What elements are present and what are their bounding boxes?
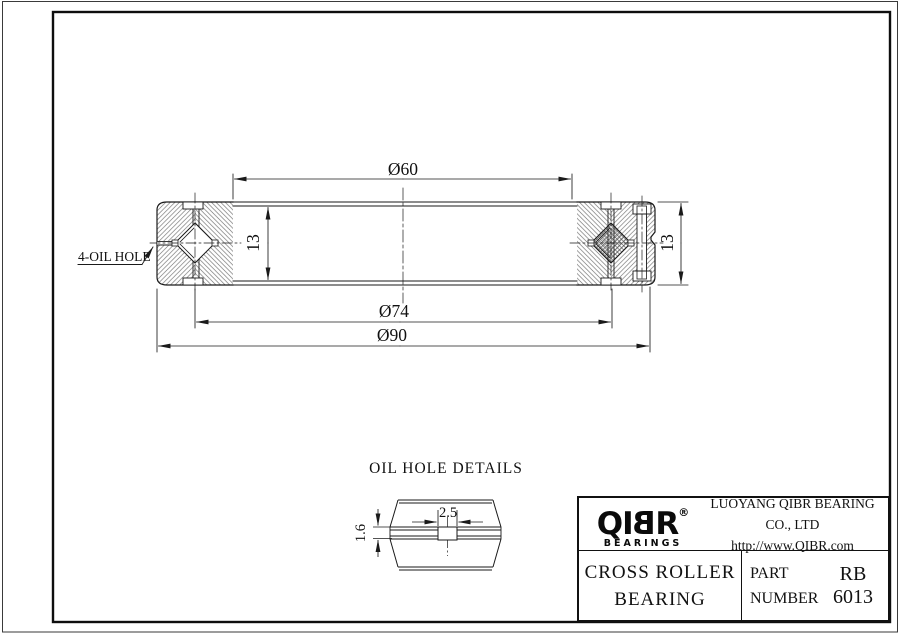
detail-title: OIL HOLE DETAILS xyxy=(369,460,523,477)
company-logo: QIBR® BEARINGS xyxy=(579,499,701,549)
dim-width-left-label: 13 xyxy=(243,234,263,252)
dim-od-label: Ø90 xyxy=(377,325,407,345)
detail-dim-width-label: 2.5 xyxy=(439,505,457,521)
drawing-sheet: Ø60 Ø74 Ø90 13 13 4-OIL HOLE OIL HOLE DE… xyxy=(0,0,900,636)
logo-letter-r: R xyxy=(655,506,678,542)
detail-dimensions xyxy=(373,509,483,557)
part-number-value: RB 6013 xyxy=(822,563,888,609)
title-block-header-row: QIBR® BEARINGS LUOYANG QIBR BEARING CO.,… xyxy=(579,498,888,551)
registered-mark: ® xyxy=(678,506,689,519)
product-name: CROSS ROLLER BEARING xyxy=(579,551,742,620)
part-number-label: PART NUMBER xyxy=(742,561,822,611)
part-label-line1: PART xyxy=(750,561,822,586)
part-number-cell: PART NUMBER RB 6013 xyxy=(742,551,888,620)
logo-letters-qi: QI xyxy=(597,506,633,542)
oil-hole-detail-view: OIL HOLE DETAILS xyxy=(353,460,523,570)
title-block: QIBR® BEARINGS LUOYANG QIBR BEARING CO.,… xyxy=(577,496,890,622)
bearing-section-view: Ø60 Ø74 Ø90 13 13 4-OIL HOLE xyxy=(78,159,688,352)
dim-pitch-label: Ø74 xyxy=(379,301,409,321)
detail-oil-hole xyxy=(438,527,457,540)
oil-hole-callout: 4-OIL HOLE xyxy=(78,247,153,265)
dim-width-right-label: 13 xyxy=(657,234,677,252)
logo-wordmark: QIBR® xyxy=(597,499,689,538)
ring-surfaces xyxy=(233,202,577,285)
product-name-line2: BEARING xyxy=(614,586,705,613)
product-name-line1: CROSS ROLLER xyxy=(585,559,736,586)
detail-dim-depth-label: 1.6 xyxy=(353,524,369,542)
title-block-detail-row: CROSS ROLLER BEARING PART NUMBER RB 6013 xyxy=(579,551,888,620)
logo-letter-b-mirrored: B xyxy=(633,510,656,538)
oil-hole-callout-label: 4-OIL HOLE xyxy=(78,249,151,264)
company-name: LUOYANG QIBR BEARING CO., LTD xyxy=(701,493,884,535)
part-label-line2: NUMBER xyxy=(750,586,822,611)
dim-bore-label: Ø60 xyxy=(388,159,418,179)
right-ring-section xyxy=(570,193,663,292)
company-info: LUOYANG QIBR BEARING CO., LTD http://www… xyxy=(701,493,888,556)
left-ring-section xyxy=(150,193,241,290)
